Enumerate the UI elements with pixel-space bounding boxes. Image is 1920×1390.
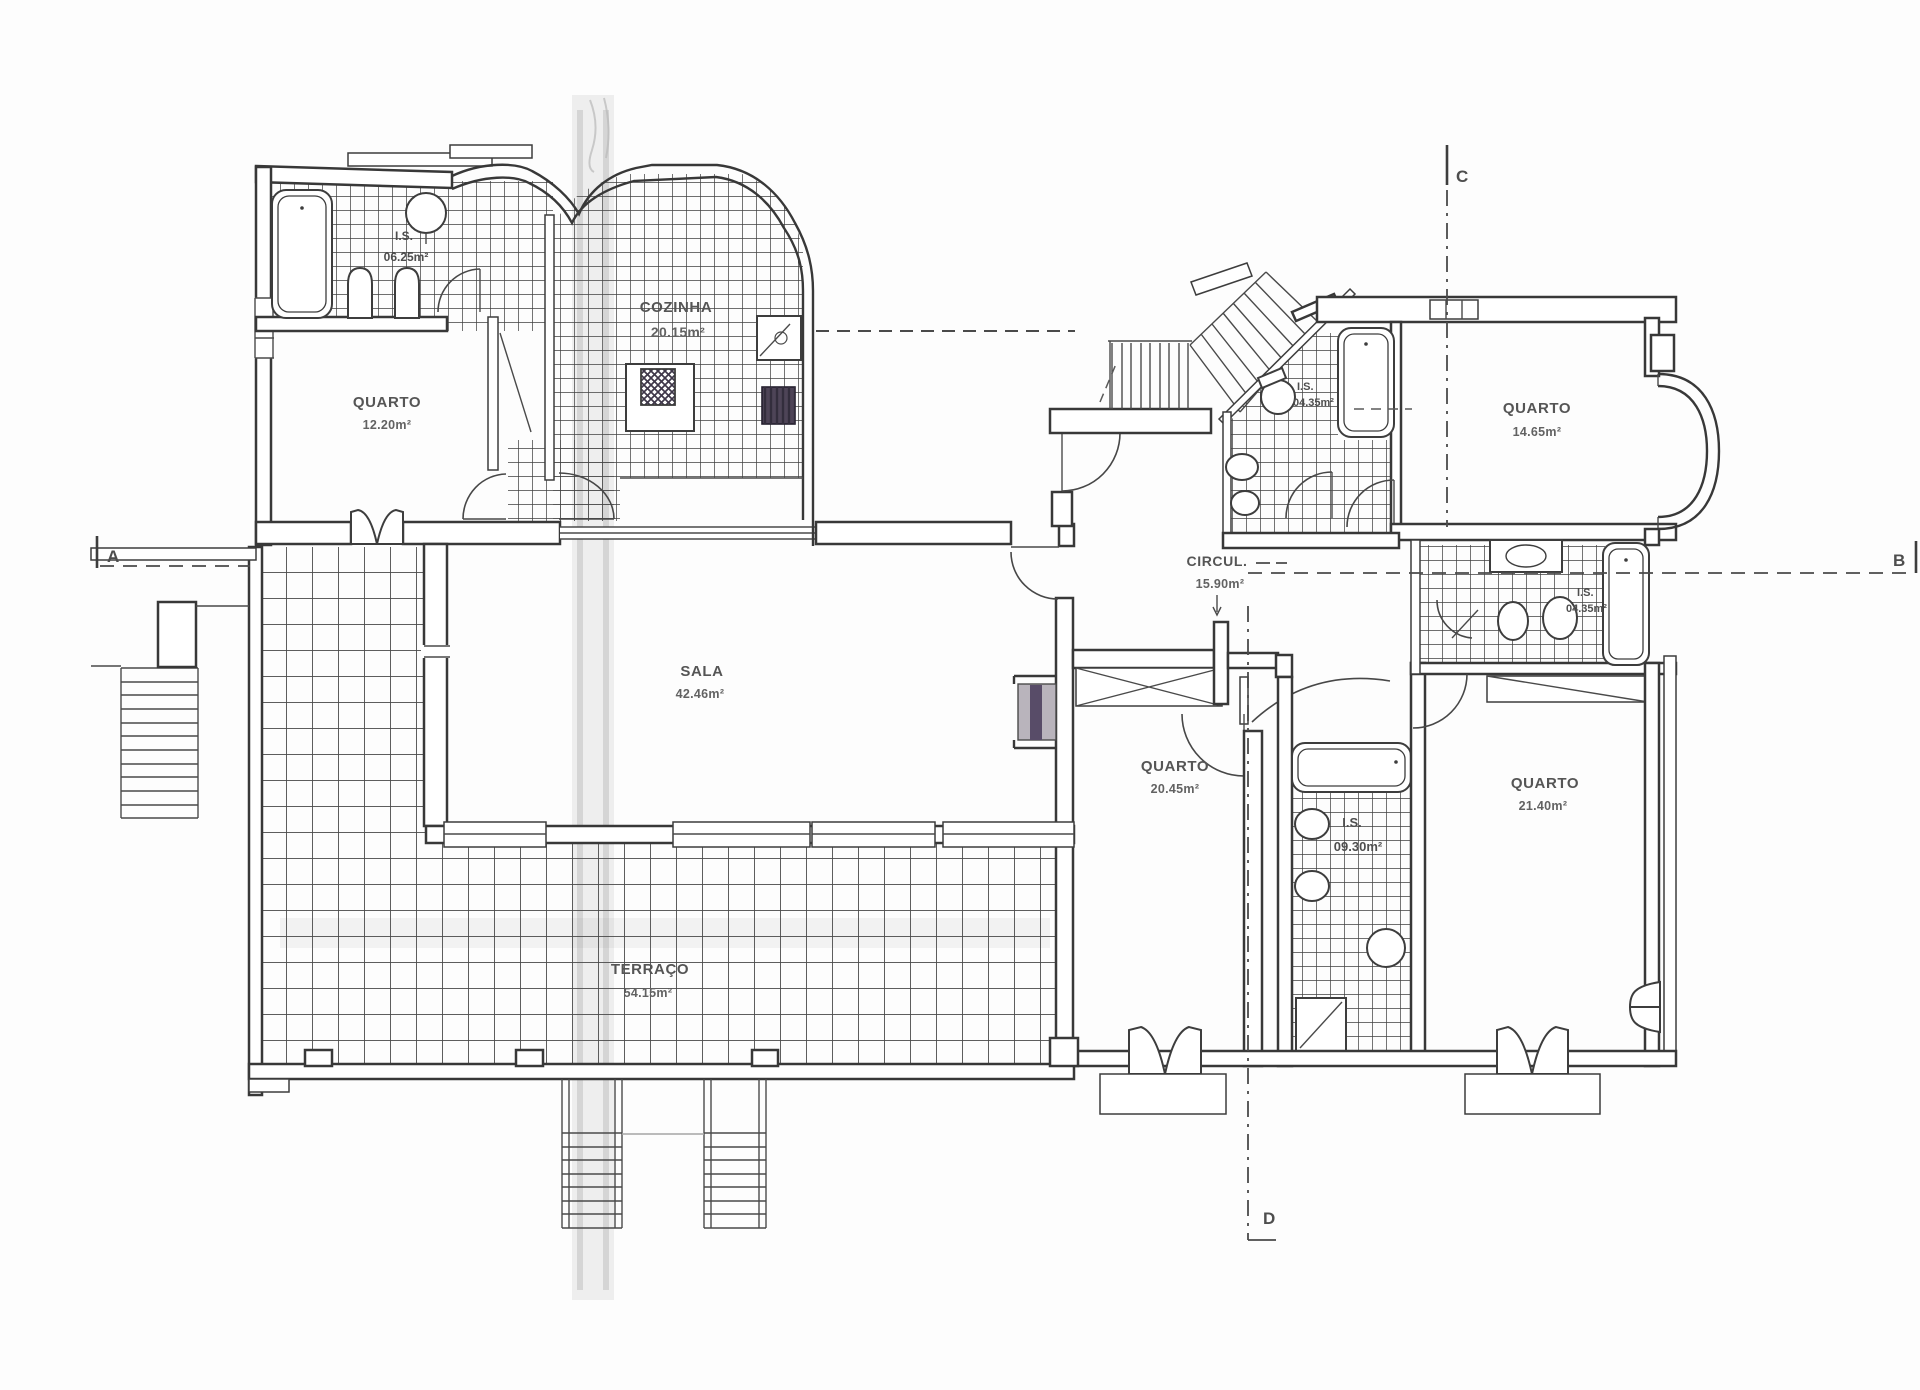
- svg-text:54.15m²: 54.15m²: [624, 986, 673, 1000]
- svg-text:QUARTO: QUARTO: [353, 394, 421, 411]
- svg-text:12.20m²: 12.20m²: [363, 418, 412, 432]
- svg-text:QUARTO: QUARTO: [1141, 758, 1209, 775]
- svg-text:QUARTO: QUARTO: [1511, 775, 1579, 792]
- svg-text:A: A: [107, 547, 119, 566]
- svg-text:I.S.: I.S.: [1577, 587, 1594, 599]
- svg-text:C: C: [1456, 167, 1468, 186]
- svg-text:I.S.: I.S.: [395, 229, 413, 243]
- svg-text:09.30m²: 09.30m²: [1334, 839, 1383, 854]
- svg-text:COZINHA: COZINHA: [640, 299, 713, 316]
- svg-text:20.45m²: 20.45m²: [1151, 782, 1200, 796]
- svg-text:TERRAÇO: TERRAÇO: [611, 961, 689, 978]
- svg-text:42.46m²: 42.46m²: [676, 687, 725, 701]
- svg-text:I.S.: I.S.: [1342, 815, 1362, 830]
- svg-text:15.90m²: 15.90m²: [1196, 577, 1245, 591]
- svg-text:QUARTO: QUARTO: [1503, 400, 1571, 417]
- svg-text:SALA: SALA: [680, 663, 723, 680]
- svg-text:B: B: [1893, 551, 1905, 570]
- svg-text:21.40m²: 21.40m²: [1519, 799, 1568, 813]
- svg-text:D: D: [1263, 1209, 1275, 1228]
- svg-text:06.25m²: 06.25m²: [384, 250, 429, 264]
- svg-text:14.65m²: 14.65m²: [1513, 425, 1562, 439]
- svg-text:04.35m²: 04.35m²: [1293, 397, 1334, 409]
- svg-text:20.15m²: 20.15m²: [651, 324, 705, 340]
- svg-text:I.S.: I.S.: [1297, 381, 1314, 393]
- svg-text:04.35m²: 04.35m²: [1566, 603, 1607, 615]
- svg-text:CIRCUL.: CIRCUL.: [1187, 553, 1248, 569]
